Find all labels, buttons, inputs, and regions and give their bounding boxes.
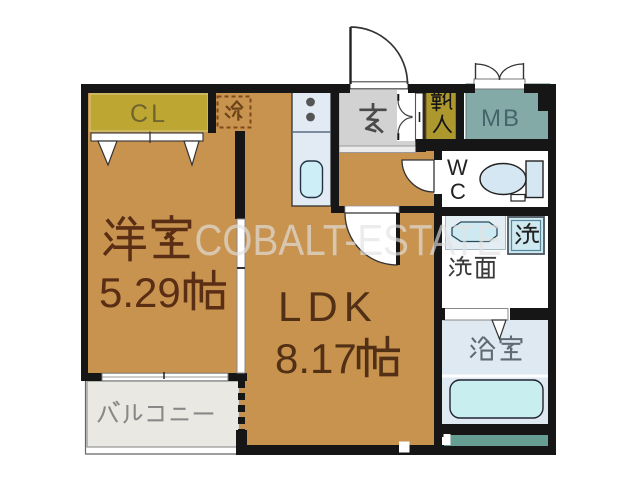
svg-text:5.29: 5.29: [99, 269, 181, 316]
svg-text:8.17: 8.17: [275, 335, 357, 382]
svg-text:LDK: LDK: [278, 283, 378, 330]
svg-text:COBALT-ESTATE: COBALT-ESTATE: [194, 215, 502, 265]
svg-text:C: C: [450, 179, 466, 204]
svg-text:W: W: [447, 155, 468, 180]
svg-text:CL: CL: [130, 100, 168, 128]
svg-text:MB: MB: [481, 105, 521, 132]
